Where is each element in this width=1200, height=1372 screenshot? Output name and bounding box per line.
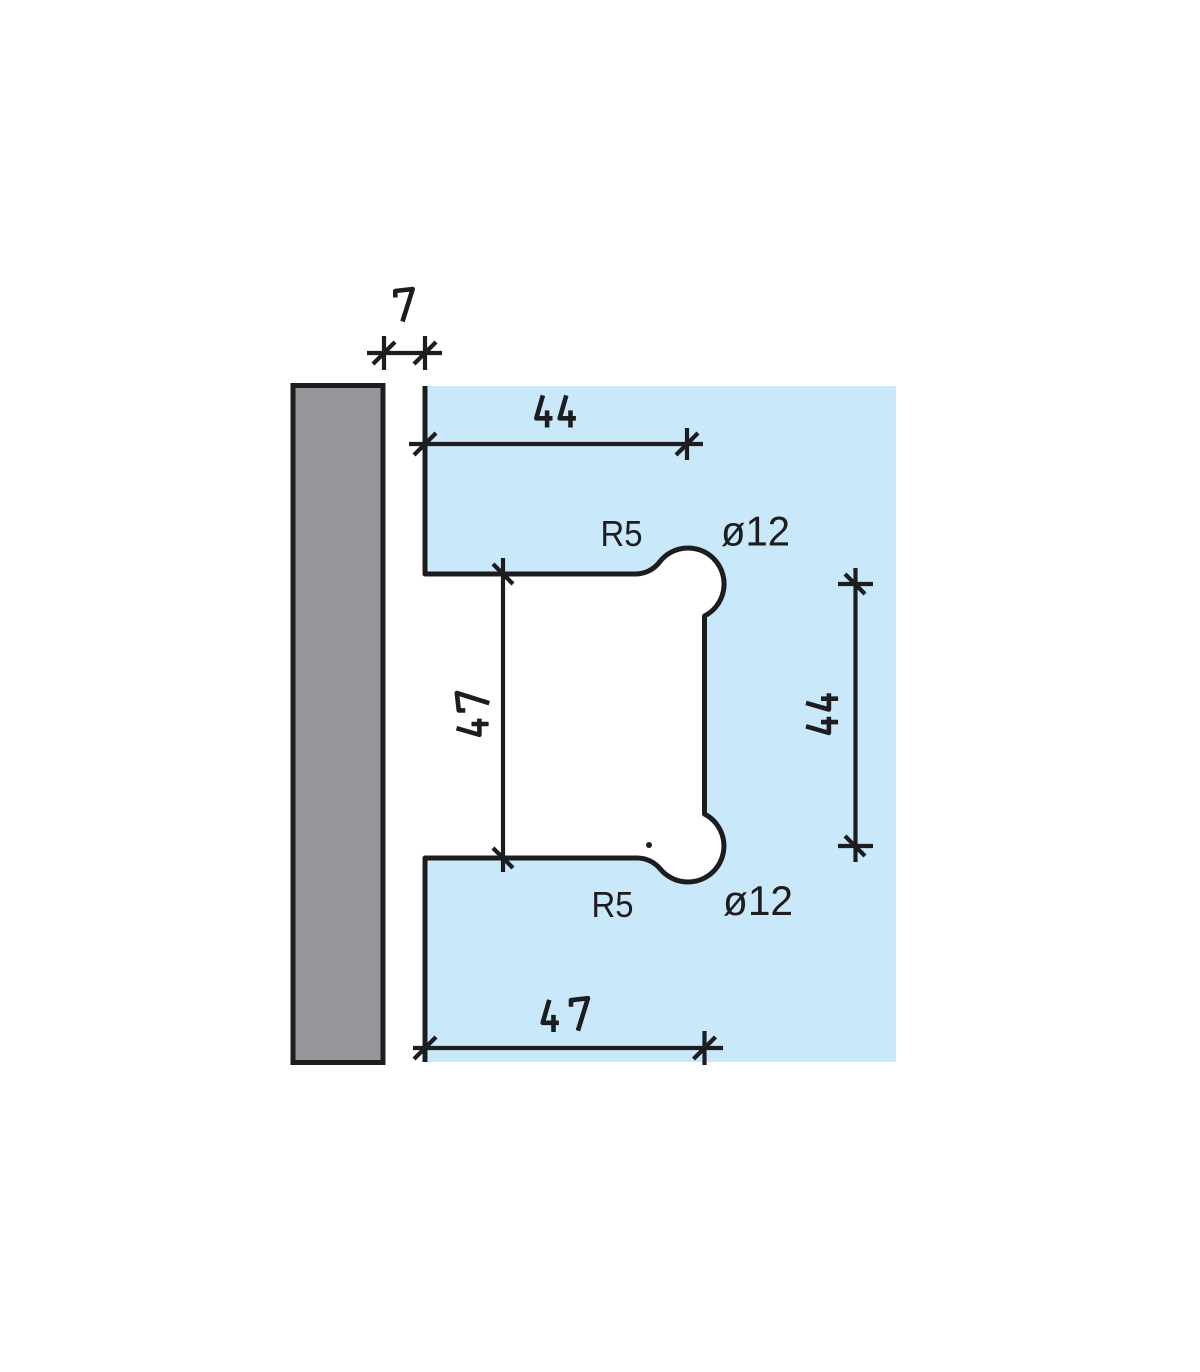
- svg-text:ø12: ø12: [721, 508, 790, 555]
- svg-text:ø12: ø12: [723, 877, 793, 924]
- svg-text:R5: R5: [601, 513, 643, 554]
- svg-text:R5: R5: [592, 884, 634, 925]
